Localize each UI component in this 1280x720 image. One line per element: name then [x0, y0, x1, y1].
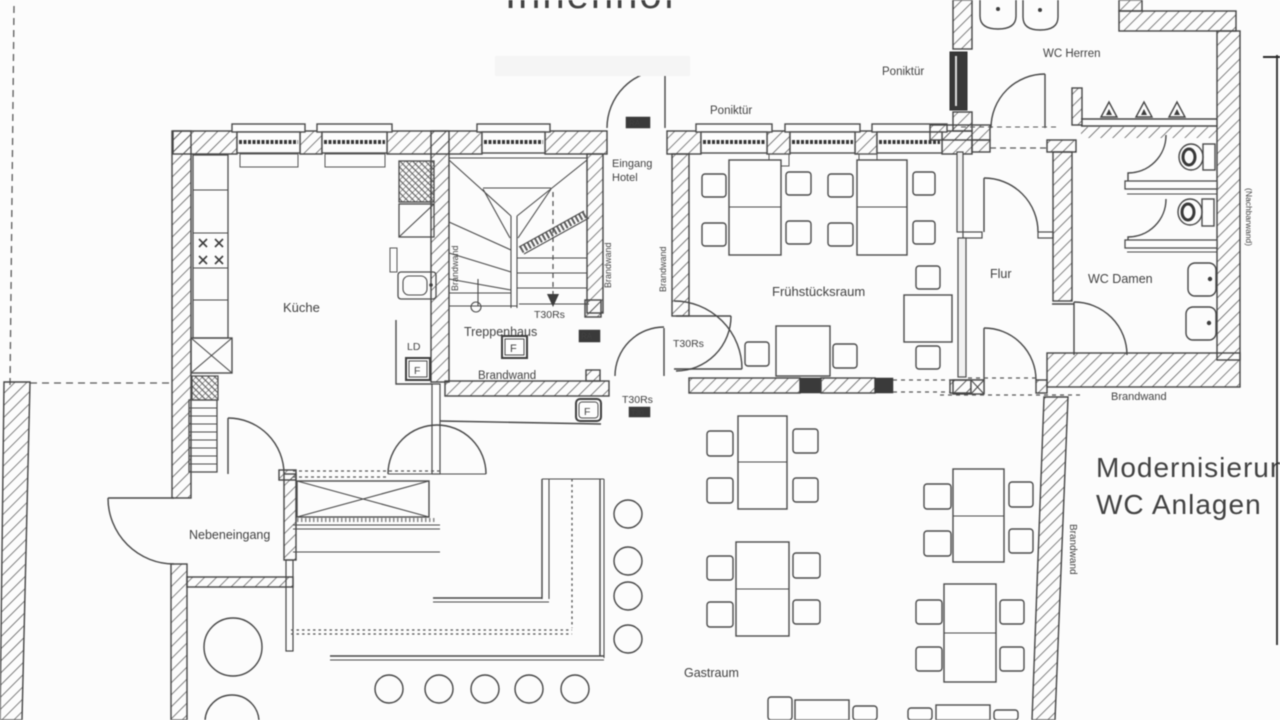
svg-text:RA: RA [581, 332, 593, 341]
svg-text:T30Rs: T30Rs [673, 338, 704, 350]
svg-text:T30: T30 [631, 408, 644, 417]
svg-text:WC Anlagen: WC Anlagen [1096, 489, 1262, 520]
svg-text:Treppenhaus: Treppenhaus [464, 325, 537, 339]
svg-text:T30Rs: T30Rs [622, 394, 653, 406]
svg-text:Modernisierung: Modernisierung [1096, 452, 1280, 483]
svg-text:Flur: Flur [990, 267, 1012, 281]
svg-text:F: F [510, 343, 517, 355]
svg-text:Brandwand: Brandwand [658, 246, 668, 292]
svg-text:T30Rs: T30Rs [534, 309, 565, 321]
svg-text:Frühstücksraum: Frühstücksraum [772, 284, 865, 299]
svg-text:WC Herren: WC Herren [1043, 48, 1101, 60]
svg-text:F: F [584, 406, 590, 418]
svg-text:Poniktür: Poniktür [882, 66, 924, 78]
svg-text:Eingang: Eingang [612, 158, 652, 170]
svg-text:(Nachbarwand): (Nachbarwand) [1244, 188, 1254, 246]
svg-text:Gastraum: Gastraum [684, 666, 739, 680]
svg-text:Innenhof: Innenhof [505, 0, 677, 17]
svg-text:Brandwand: Brandwand [478, 370, 536, 382]
svg-text:Hotel: Hotel [612, 172, 638, 184]
svg-text:Brandwand: Brandwand [450, 245, 460, 291]
svg-text:F: F [414, 365, 420, 377]
svg-text:Nebeneingang: Nebeneingang [189, 528, 270, 542]
svg-text:LD: LD [407, 341, 421, 353]
svg-text:Poniktür: Poniktür [710, 105, 752, 117]
svg-text:Küche: Küche [283, 300, 320, 315]
svg-text:Brandwand: Brandwand [603, 242, 613, 288]
svg-text:WC Damen: WC Damen [1088, 272, 1153, 286]
svg-text:Brandwand: Brandwand [1111, 391, 1167, 403]
svg-text:Brandwand: Brandwand [1067, 524, 1078, 575]
svg-text:RA: RA [629, 119, 641, 128]
